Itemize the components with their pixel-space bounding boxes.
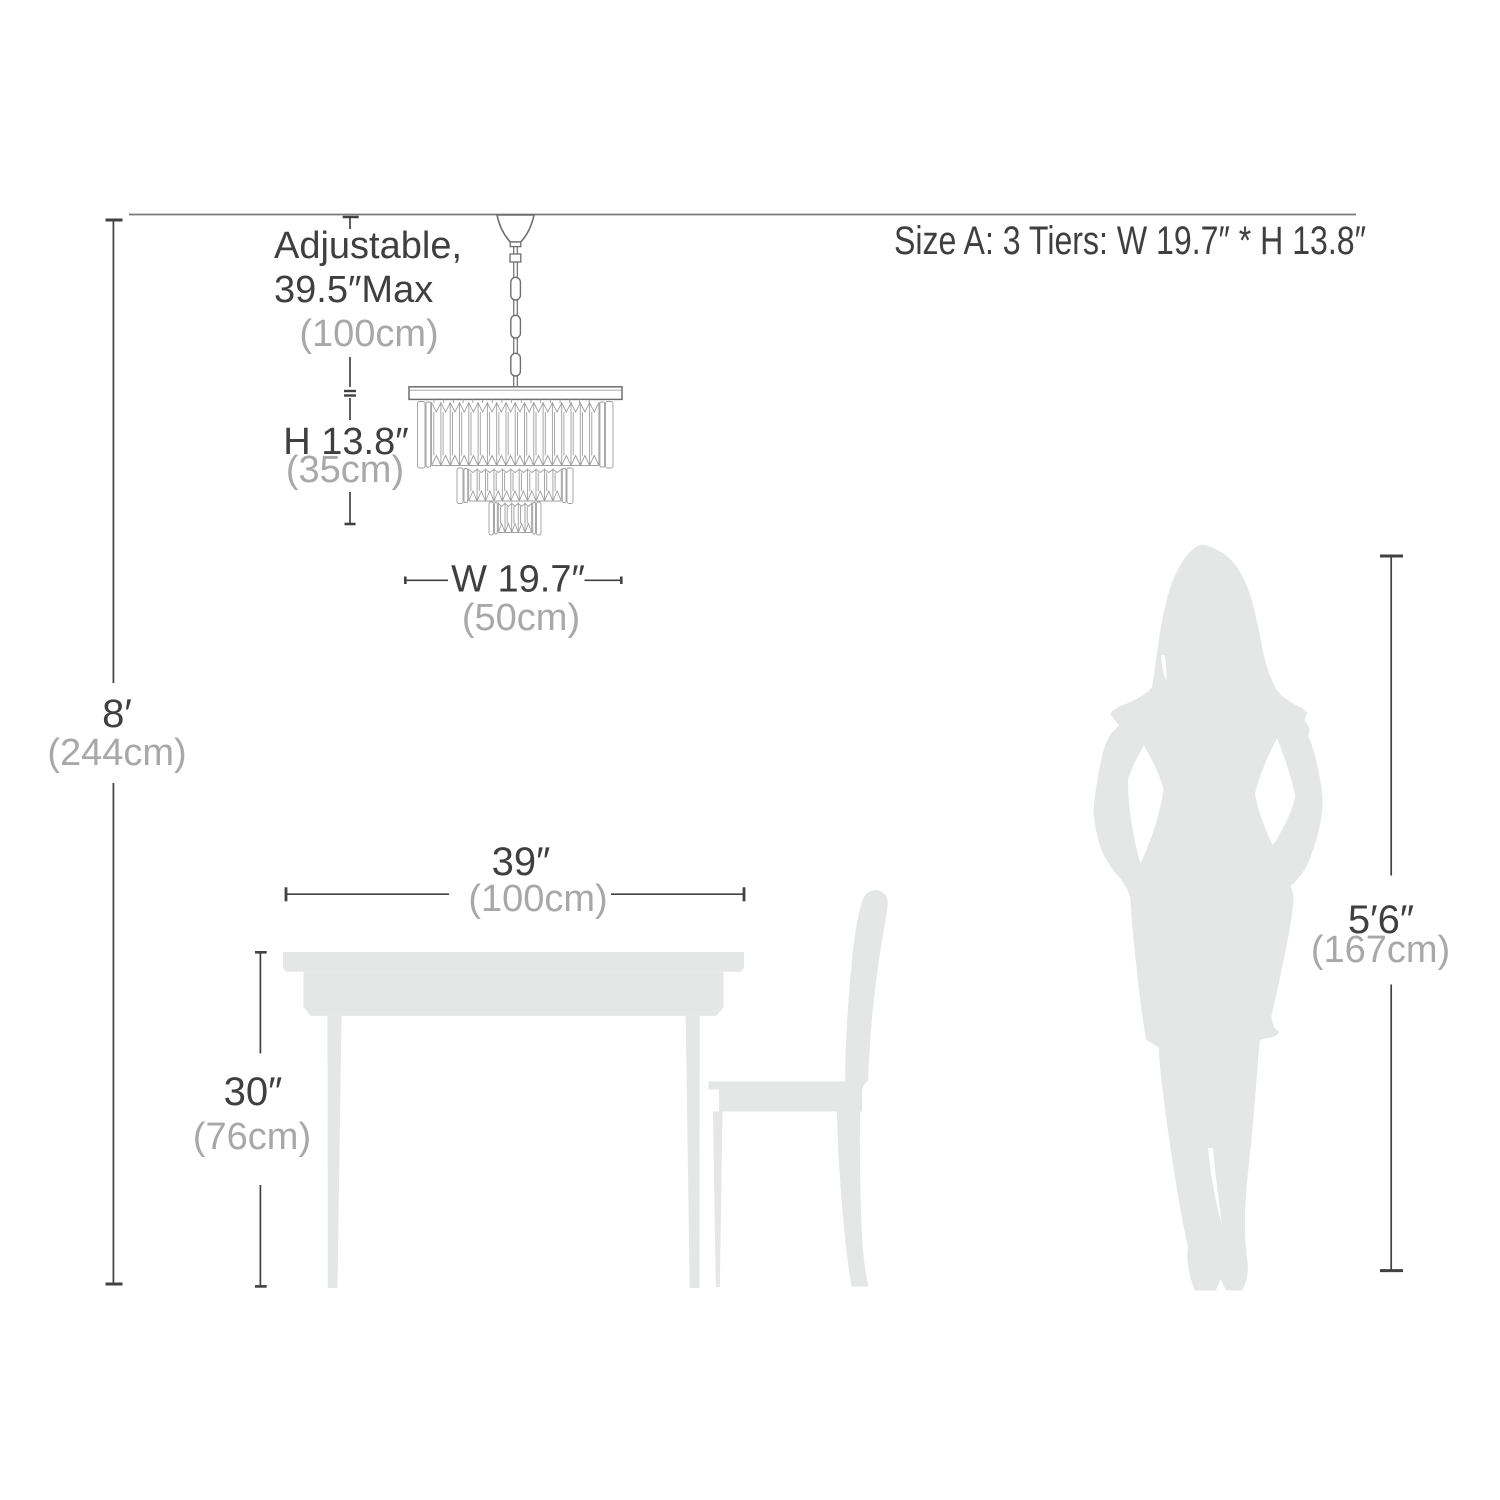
- svg-text:W 19.7″: W 19.7″: [451, 559, 585, 601]
- svg-text:(167cm): (167cm): [1311, 929, 1450, 971]
- svg-text:(50cm): (50cm): [462, 597, 580, 639]
- svg-text:(244cm): (244cm): [47, 732, 186, 774]
- svg-text:Size A: 3 Tiers: W 19.7″ * H 1: Size A: 3 Tiers: W 19.7″ * H 13.8″: [894, 219, 1366, 263]
- svg-text:Adjustable,: Adjustable,: [274, 225, 462, 267]
- svg-text:8′: 8′: [102, 692, 132, 736]
- svg-text:39.5″Max: 39.5″Max: [274, 269, 433, 311]
- svg-text:(100cm): (100cm): [299, 313, 438, 355]
- svg-text:(35cm): (35cm): [286, 449, 404, 491]
- svg-text:(76cm): (76cm): [193, 1116, 311, 1158]
- svg-text:30″: 30″: [224, 1070, 283, 1114]
- svg-text:(100cm): (100cm): [468, 878, 607, 920]
